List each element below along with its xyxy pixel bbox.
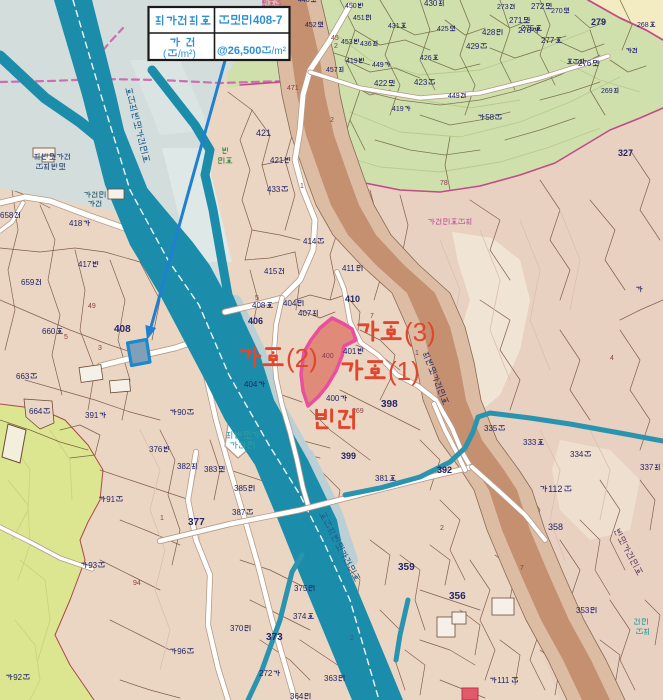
svg-text:392: 392	[437, 465, 452, 475]
svg-text:453: 453	[341, 39, 353, 46]
svg-text:450: 450	[345, 3, 357, 10]
svg-text:370: 370	[230, 624, 244, 633]
svg-text:91: 91	[106, 495, 115, 504]
svg-text:272: 272	[531, 2, 545, 11]
svg-text:400: 400	[322, 353, 334, 360]
svg-text:429: 429	[466, 42, 480, 51]
svg-text:353: 353	[576, 606, 590, 615]
svg-text:419: 419	[392, 106, 404, 113]
svg-text:421: 421	[256, 128, 271, 138]
svg-text:96: 96	[177, 647, 186, 656]
svg-text:449: 449	[448, 93, 460, 100]
svg-text:430: 430	[424, 0, 438, 8]
svg-text:660: 660	[42, 327, 56, 336]
svg-text:90: 90	[177, 408, 186, 417]
svg-text:363: 363	[324, 674, 338, 683]
svg-text:423: 423	[414, 78, 428, 87]
svg-text:2: 2	[440, 525, 444, 532]
svg-text:451: 451	[353, 15, 365, 22]
svg-text:404: 404	[283, 299, 297, 308]
svg-text:400: 400	[326, 394, 340, 403]
svg-text:448: 448	[298, 0, 310, 4]
svg-text:418: 418	[69, 219, 83, 228]
svg-text:272: 272	[259, 669, 273, 678]
svg-text:399: 399	[341, 451, 356, 461]
svg-text:335: 335	[484, 424, 498, 433]
svg-text:404: 404	[244, 380, 258, 389]
svg-text:5: 5	[255, 295, 259, 302]
svg-text:411: 411	[342, 264, 355, 273]
svg-text:278: 278	[518, 26, 532, 35]
svg-text:1: 1	[160, 515, 164, 522]
svg-text:(3): (3)	[404, 317, 436, 347]
svg-text:383: 383	[204, 465, 218, 474]
svg-text:425: 425	[437, 26, 449, 33]
svg-text:408: 408	[114, 324, 131, 335]
svg-text:269: 269	[601, 88, 613, 95]
svg-text:431: 431	[388, 23, 400, 30]
svg-text:337: 337	[640, 463, 654, 472]
svg-text:377: 377	[188, 517, 205, 528]
svg-text:433: 433	[267, 185, 281, 194]
svg-text:408-7: 408-7	[253, 15, 282, 27]
svg-text:414: 414	[303, 237, 317, 246]
svg-text:452: 452	[305, 22, 317, 29]
svg-text:93: 93	[88, 561, 97, 570]
svg-text:1: 1	[300, 183, 304, 190]
svg-text:398: 398	[381, 399, 398, 410]
svg-text:/m²): /m²)	[178, 49, 196, 60]
svg-text:664: 664	[29, 407, 43, 416]
svg-text:(2): (2)	[286, 343, 318, 373]
svg-text:376: 376	[149, 445, 163, 454]
svg-text:45: 45	[331, 35, 339, 42]
svg-text:268: 268	[637, 22, 649, 29]
svg-text:92: 92	[13, 673, 22, 682]
svg-text:422: 422	[374, 79, 388, 88]
svg-text:273: 273	[497, 4, 509, 11]
svg-text:419: 419	[346, 58, 358, 65]
svg-text:364: 364	[290, 692, 304, 700]
svg-text:401: 401	[343, 347, 357, 356]
svg-text:421: 421	[270, 156, 284, 165]
svg-text:428: 428	[482, 28, 496, 37]
svg-text:4: 4	[610, 355, 614, 362]
svg-text:374: 374	[293, 612, 307, 621]
svg-text:(1): (1)	[388, 356, 420, 386]
svg-text:279: 279	[591, 17, 606, 27]
svg-text:2: 2	[350, 635, 354, 642]
svg-text:385: 385	[234, 484, 248, 493]
svg-text:78: 78	[440, 180, 448, 187]
svg-text:49: 49	[88, 303, 96, 310]
svg-text:449: 449	[372, 62, 384, 69]
svg-text:7: 7	[520, 565, 524, 572]
svg-text:277: 277	[541, 36, 555, 45]
svg-text:375: 375	[294, 584, 308, 593]
svg-text:5: 5	[64, 334, 68, 341]
svg-text:@26,500: @26,500	[217, 45, 261, 57]
svg-text:415: 415	[264, 267, 278, 276]
svg-text:407: 407	[298, 309, 312, 318]
svg-text:359: 359	[398, 562, 415, 573]
svg-text:391: 391	[85, 411, 99, 420]
svg-text:373: 373	[266, 632, 283, 643]
svg-text:94: 94	[133, 580, 141, 587]
svg-text:382: 382	[177, 462, 191, 471]
svg-text:271: 271	[509, 16, 523, 25]
svg-text:334: 334	[570, 450, 584, 459]
svg-text:112: 112	[548, 484, 562, 494]
svg-text:408: 408	[252, 301, 266, 310]
svg-text:658: 658	[0, 211, 14, 220]
svg-text:471: 471	[287, 85, 299, 92]
svg-text:3: 3	[98, 345, 102, 352]
svg-text:387: 387	[232, 508, 246, 517]
svg-text:426: 426	[420, 55, 432, 62]
svg-text:58: 58	[485, 113, 494, 122]
svg-text:381: 381	[375, 474, 389, 483]
svg-text:659: 659	[21, 278, 35, 287]
svg-text:406: 406	[248, 316, 263, 326]
svg-text:270: 270	[551, 8, 563, 15]
svg-text:410: 410	[345, 294, 360, 304]
svg-text:111: 111	[497, 676, 510, 685]
svg-text:663: 663	[16, 372, 30, 381]
svg-text:457: 457	[326, 67, 338, 74]
svg-text:2: 2	[334, 43, 338, 50]
svg-text:/m²: /m²	[272, 46, 287, 57]
svg-text:327: 327	[618, 148, 633, 158]
svg-text:2: 2	[330, 117, 334, 124]
svg-text:436: 436	[360, 41, 372, 48]
svg-text:356: 356	[449, 591, 466, 602]
svg-text:333: 333	[523, 438, 537, 447]
svg-text:417: 417	[78, 260, 92, 269]
svg-text:7: 7	[370, 313, 374, 320]
svg-text:358: 358	[548, 522, 563, 532]
